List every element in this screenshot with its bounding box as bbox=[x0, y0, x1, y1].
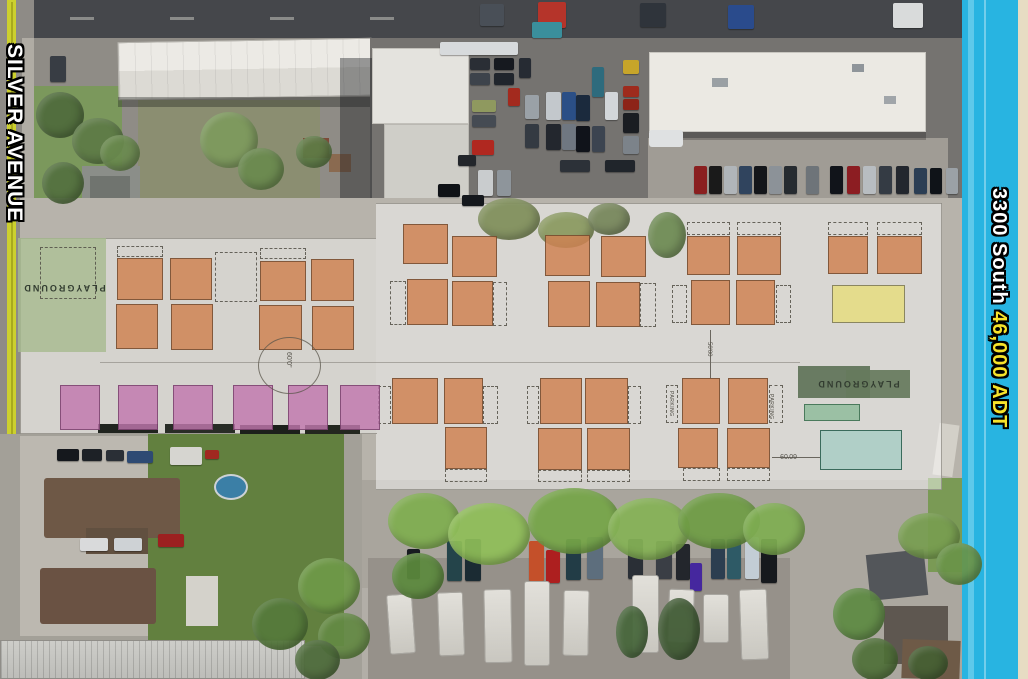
parking-pad-dashed bbox=[877, 222, 922, 235]
unit-pad bbox=[736, 280, 775, 325]
unit-pad bbox=[311, 259, 354, 301]
unit-pad bbox=[403, 224, 448, 264]
vertical-dimension: 50'00 bbox=[706, 342, 712, 357]
unit-pad bbox=[170, 258, 212, 300]
parking-pad-dashed bbox=[687, 222, 730, 235]
unit-pad bbox=[877, 236, 922, 274]
unit-pad bbox=[538, 428, 582, 470]
parking-pad-dashed bbox=[117, 246, 163, 257]
unit-pad bbox=[171, 304, 213, 350]
playground-label-west: PLAYGROUND bbox=[22, 283, 106, 293]
unit-pad bbox=[678, 428, 718, 468]
parking-pad-dashed bbox=[445, 469, 487, 482]
playground-label-east: PLAYGROUND bbox=[812, 379, 904, 389]
aerial-site-plan: SILVER AVENUE 3300 South 46,000 ADT PLAY… bbox=[0, 0, 1028, 679]
unit-pad bbox=[312, 306, 354, 350]
playground-structure bbox=[804, 404, 860, 421]
unit-pad bbox=[392, 378, 438, 424]
unit-pad bbox=[587, 428, 630, 470]
parking-pad-dashed bbox=[390, 281, 406, 325]
garage-pad bbox=[60, 385, 100, 430]
parking-pad-dashed bbox=[587, 470, 630, 482]
parking-pad-dashed bbox=[538, 470, 582, 482]
garage-pad bbox=[233, 385, 273, 430]
turning-radius-dimension: 60'0" bbox=[285, 352, 292, 368]
street-label-3300-south: 3300 South 46,000 ADT bbox=[987, 188, 1010, 428]
teal-pad bbox=[820, 430, 902, 470]
unit-pad bbox=[117, 258, 163, 300]
horizontal-dimension: 60'09 bbox=[780, 452, 797, 459]
street-name-text: 3300 South bbox=[988, 188, 1010, 305]
unit-pad bbox=[116, 304, 158, 349]
unit-pad bbox=[545, 235, 590, 276]
yellow-pad bbox=[832, 285, 905, 323]
unit-pad bbox=[687, 236, 730, 275]
street-label-silver-avenue: SILVER AVENUE bbox=[2, 44, 26, 222]
unit-pad bbox=[407, 279, 448, 325]
unit-pad bbox=[691, 280, 730, 325]
adt-count-text: 46,000 ADT bbox=[988, 311, 1010, 428]
parking-pad-dashed bbox=[672, 285, 687, 323]
unit-pad bbox=[540, 378, 582, 424]
parking-pad-dashed bbox=[737, 222, 781, 235]
parking-pad-dashed bbox=[260, 248, 306, 259]
parking-pad-dashed bbox=[493, 282, 507, 326]
parking-pad-dashed bbox=[628, 386, 641, 424]
unit-pad bbox=[596, 282, 640, 327]
parking-pad-dashed bbox=[776, 285, 791, 323]
site-plan-layer bbox=[0, 0, 1028, 679]
parking-pad-dashed bbox=[483, 386, 498, 424]
unit-pad bbox=[445, 427, 487, 469]
unit-pad bbox=[585, 378, 628, 424]
parking-pad-dashed bbox=[683, 468, 720, 481]
parking-pad-dashed bbox=[215, 252, 257, 302]
unit-pad bbox=[737, 236, 781, 275]
garage-pad bbox=[340, 385, 380, 430]
unit-pad bbox=[601, 236, 646, 277]
unit-pad bbox=[828, 236, 868, 274]
parking-pad-dashed bbox=[727, 468, 770, 481]
parking-pad-dashed bbox=[527, 386, 539, 424]
unit-pad bbox=[260, 261, 306, 301]
parking-pad-note: PARKING bbox=[768, 394, 774, 420]
unit-pad bbox=[452, 281, 493, 326]
unit-pad bbox=[548, 281, 590, 327]
unit-pad bbox=[444, 378, 483, 424]
unit-pad bbox=[452, 236, 497, 277]
unit-pad bbox=[727, 428, 770, 468]
unit-pad bbox=[682, 378, 720, 424]
parking-pad-dashed bbox=[640, 283, 656, 327]
parking-pad-dashed bbox=[828, 222, 868, 235]
garage-pad bbox=[118, 385, 158, 430]
garage-pad bbox=[173, 385, 213, 430]
parking-pad-note: PARKING bbox=[668, 391, 674, 417]
unit-pad bbox=[728, 378, 768, 424]
